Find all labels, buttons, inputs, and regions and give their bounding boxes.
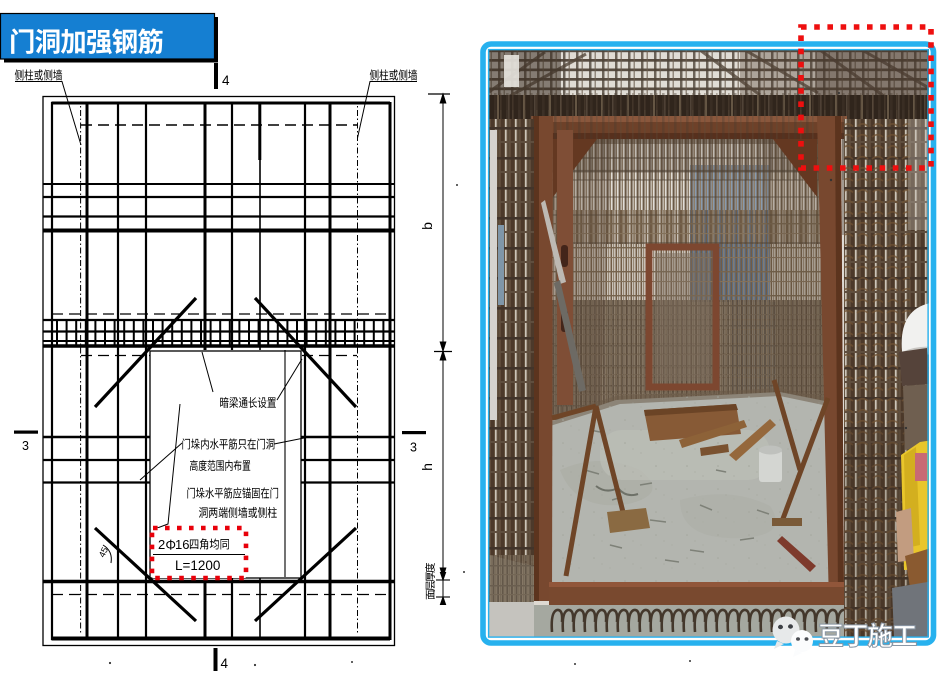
svg-text:4: 4 <box>222 73 230 88</box>
svg-text:3: 3 <box>22 439 29 453</box>
svg-text:2: 2 <box>158 537 165 552</box>
svg-text:h: h <box>419 463 435 471</box>
svg-text:4: 4 <box>221 656 229 671</box>
svg-text:b: b <box>419 222 435 230</box>
svg-text:3: 3 <box>410 441 417 455</box>
svg-text:L=1200: L=1200 <box>175 558 220 573</box>
svg-text:16: 16 <box>175 537 189 552</box>
